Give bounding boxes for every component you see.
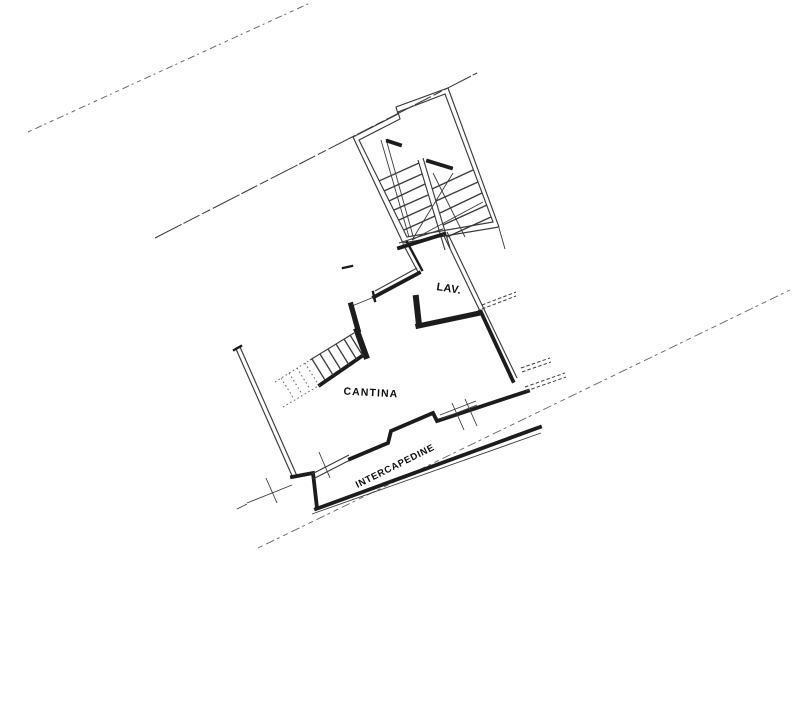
room-labels: LAV. CANTINA INTERCAPEDINE [343, 281, 462, 491]
staircase-end-cap [357, 331, 366, 356]
intercapedine-outer-wall [316, 427, 540, 509]
door-threshold [352, 297, 374, 306]
stairwell-inner-wall [359, 94, 493, 237]
door-jamb [373, 292, 375, 301]
boundary-lines [28, 3, 790, 548]
right-wall-thick-section [481, 312, 513, 381]
entry-wall [374, 273, 419, 297]
entry-passage [343, 242, 422, 330]
right-wall [443, 232, 517, 381]
staircase-lower-rail [320, 356, 362, 385]
boundary-line-lower [258, 290, 790, 548]
door-jamb-pillar [351, 305, 358, 330]
cantina-room [234, 331, 528, 508]
label-intercapedine: INTERCAPEDINE [354, 442, 437, 491]
wall-tick [388, 141, 400, 145]
label-cantina: CANTINA [343, 386, 399, 401]
cantina-left-wall [236, 349, 293, 478]
floor-plan-page: LAV. CANTINA INTERCAPEDINE [0, 0, 799, 720]
label-lav: LAV. [436, 281, 462, 297]
stairwell [353, 88, 505, 250]
lav-l-wall-vertical [416, 298, 419, 325]
dash-mark [343, 266, 352, 268]
intercapedine-strip [312, 401, 541, 514]
cantina-bottom-wall [350, 391, 528, 459]
landing-edge [428, 161, 451, 168]
floor-plan-canvas: LAV. CANTINA INTERCAPEDINE [0, 0, 799, 720]
boundary-line-upper [28, 3, 310, 132]
lav-l-wall-horizontal [418, 313, 480, 326]
